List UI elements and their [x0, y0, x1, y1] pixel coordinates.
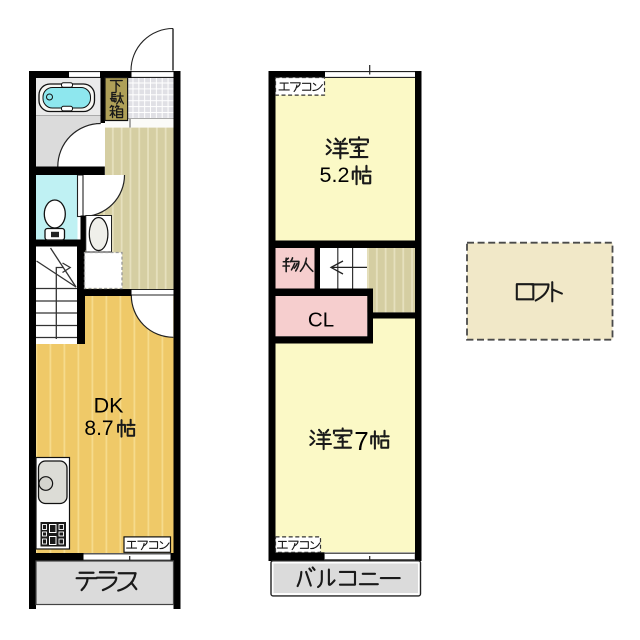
svg-text:DK: DK: [94, 394, 125, 418]
svg-text:7: 7: [354, 426, 368, 456]
svg-text:CL: CL: [308, 309, 334, 332]
svg-text:5.2: 5.2: [320, 163, 350, 187]
svg-text:8.7: 8.7: [84, 417, 113, 440]
